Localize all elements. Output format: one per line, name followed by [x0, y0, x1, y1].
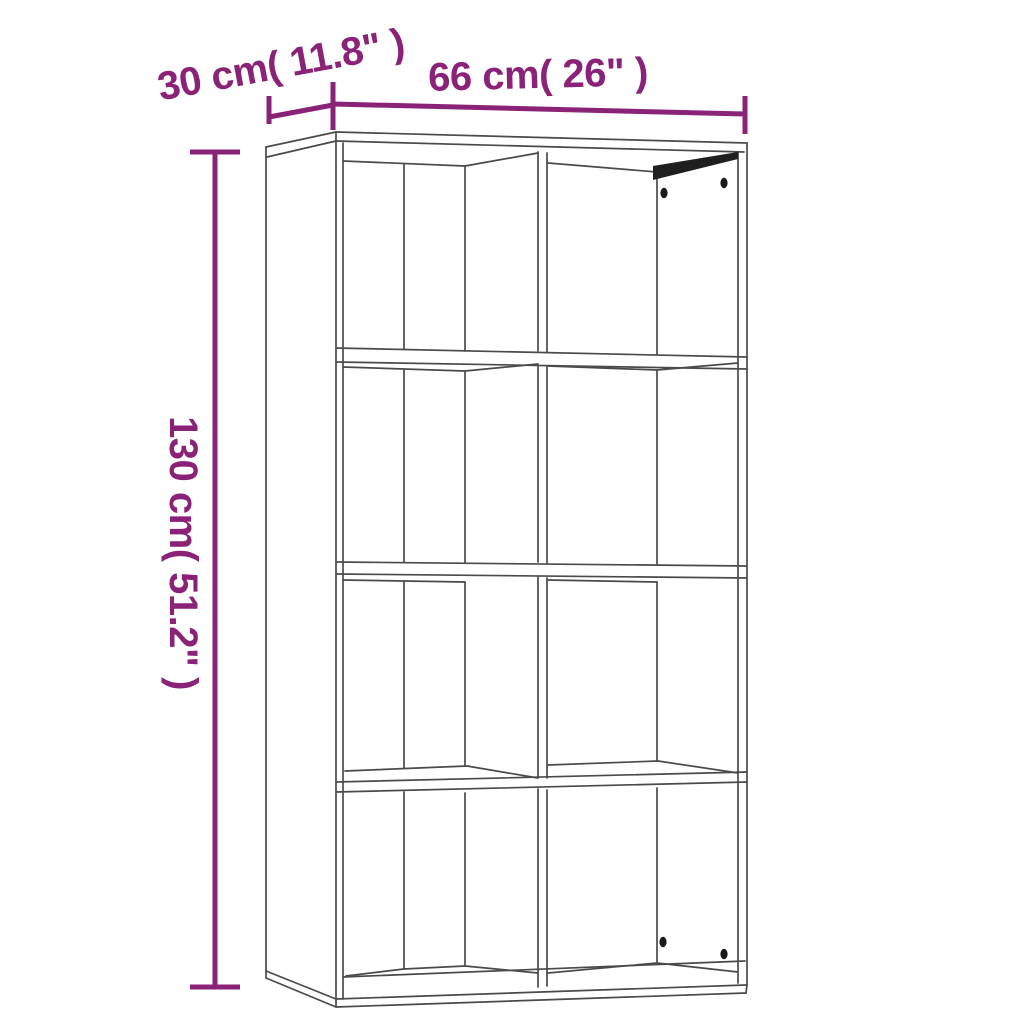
top-shadow-wedge [653, 152, 738, 180]
height-dimension-label: 130 cm( 51.2" ) [160, 383, 206, 723]
middle-divider [538, 152, 547, 987]
peg-hole-icon [659, 937, 666, 947]
peg-holes [659, 178, 727, 959]
left-side-panel [266, 132, 336, 1007]
width-dimension-label: 66 cm( 26" ) [407, 49, 668, 102]
dimension-diagram: 30 cm( 11.8" ) 66 cm( 26" ) 130 cm( 51.2… [0, 0, 1024, 1024]
depth-dimension-line [269, 96, 333, 124]
bookcase-line-art [0, 0, 1024, 1024]
shelf-1 [336, 348, 747, 369]
shelf-2 [336, 562, 747, 578]
peg-hole-icon [660, 188, 667, 198]
bookcase-structure [266, 132, 747, 1007]
dimension-lines [190, 82, 745, 987]
front-frame [336, 132, 747, 1007]
peg-hole-icon [720, 949, 727, 959]
row2-interior [343, 363, 738, 564]
row3-interior [343, 580, 657, 768]
row4-interior [343, 788, 745, 977]
shelf-3 [336, 772, 747, 792]
row1-interior [343, 153, 657, 354]
peg-hole-icon [720, 178, 727, 188]
